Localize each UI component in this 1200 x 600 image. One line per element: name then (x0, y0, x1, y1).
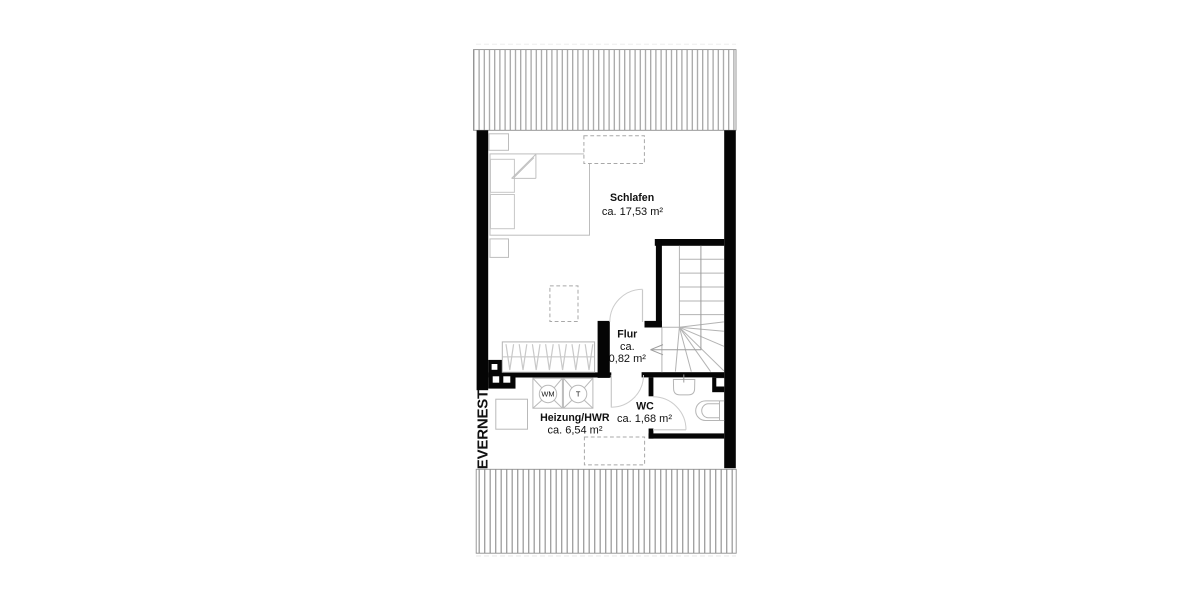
svg-text:T: T (576, 390, 581, 399)
svg-text:EVERNEST: EVERNEST (475, 390, 492, 469)
svg-text:Heizung/HWR: Heizung/HWR (540, 412, 610, 424)
svg-text:ca. 6,54 m²: ca. 6,54 m² (547, 424, 602, 436)
svg-text:Flur: Flur (617, 329, 637, 341)
svg-text:Schlafen: Schlafen (610, 192, 654, 204)
svg-text:ca.: ca. (620, 341, 635, 353)
svg-text:0,82 m²: 0,82 m² (609, 353, 647, 365)
svg-text:ca. 17,53 m²: ca. 17,53 m² (602, 206, 663, 218)
svg-text:WM: WM (541, 390, 554, 399)
svg-text:WC: WC (636, 401, 654, 413)
svg-text:ca. 1,68 m²: ca. 1,68 m² (617, 413, 672, 425)
